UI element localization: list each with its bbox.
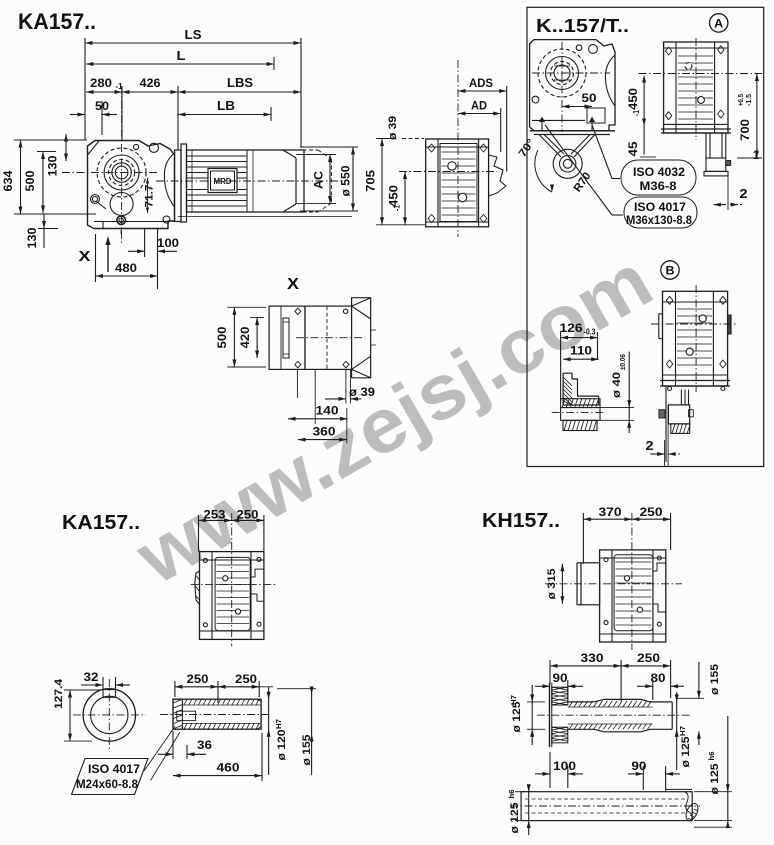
svg-text:ISO 4017: ISO 4017 <box>88 762 140 776</box>
svg-text:X: X <box>287 276 299 293</box>
svg-text:634: 634 <box>1 170 15 191</box>
svg-text:ø 39: ø 39 <box>349 385 375 399</box>
svg-text:ø 125: ø 125 <box>680 737 692 768</box>
svg-text:130: 130 <box>25 227 39 248</box>
svg-text:ISO 4017: ISO 4017 <box>634 200 686 214</box>
svg-text:250: 250 <box>640 505 663 519</box>
svg-text:250: 250 <box>237 507 259 521</box>
svg-text:LBS: LBS <box>227 75 253 90</box>
svg-text:ø 125: ø 125 <box>709 764 721 795</box>
svg-text:X: X <box>79 248 91 265</box>
svg-text:140: 140 <box>316 404 339 418</box>
svg-text:500: 500 <box>215 326 229 348</box>
svg-text:ADS: ADS <box>469 76 493 90</box>
svg-text:127.4: 127.4 <box>53 678 65 709</box>
svg-text:-0.3: -0.3 <box>584 328 596 337</box>
svg-text:ø 155: ø 155 <box>301 735 313 766</box>
svg-text:100: 100 <box>157 236 179 250</box>
svg-text:+0.5: +0.5 <box>738 94 745 106</box>
svg-text:A: A <box>714 17 723 31</box>
svg-text:1: 1 <box>753 148 759 162</box>
svg-text:130: 130 <box>46 155 60 176</box>
svg-text:110: 110 <box>570 344 592 358</box>
svg-text:MRD: MRD <box>214 177 232 186</box>
svg-text:330: 330 <box>581 651 604 665</box>
svg-text:KH157..: KH157.. <box>482 510 560 532</box>
svg-text:ø 125: ø 125 <box>511 702 523 733</box>
svg-text:KA157..: KA157.. <box>62 512 140 534</box>
svg-text:-1: -1 <box>632 110 641 116</box>
svg-text:H7: H7 <box>680 726 687 736</box>
svg-text:-1: -1 <box>393 205 402 211</box>
svg-text:AC: AC <box>312 171 326 189</box>
svg-text:ISO 4032: ISO 4032 <box>633 165 685 179</box>
svg-text:450: 450 <box>626 88 640 110</box>
svg-text:-1.5: -1.5 <box>746 94 753 106</box>
svg-text:LS: LS <box>185 27 202 42</box>
svg-text:K..157/T..: K..157/T.. <box>536 16 629 36</box>
svg-text:253: 253 <box>204 507 226 521</box>
svg-text:ø 550: ø 550 <box>339 165 353 196</box>
svg-text:M36x130-8.8: M36x130-8.8 <box>626 213 692 227</box>
svg-text:90: 90 <box>631 759 646 773</box>
svg-text:L: L <box>177 48 186 63</box>
svg-text:KA157..: KA157.. <box>18 9 96 34</box>
svg-text:250: 250 <box>187 672 209 686</box>
svg-text:460: 460 <box>217 761 240 775</box>
svg-text:AD: AD <box>471 99 487 113</box>
svg-text:±0.06: ±0.06 <box>620 354 627 370</box>
svg-text:420: 420 <box>238 326 252 348</box>
svg-text:ø 39: ø 39 <box>387 116 399 140</box>
svg-text:2: 2 <box>740 186 748 201</box>
svg-text:2: 2 <box>646 438 654 453</box>
svg-text:50: 50 <box>582 91 597 105</box>
svg-text:250: 250 <box>637 651 660 665</box>
svg-text:B: B <box>666 264 675 278</box>
svg-text:100: 100 <box>553 759 576 773</box>
svg-text:M24x60-8.8: M24x60-8.8 <box>76 777 138 791</box>
svg-text:H7: H7 <box>511 695 518 705</box>
svg-text:126: 126 <box>560 321 583 335</box>
svg-text:32: 32 <box>84 670 99 684</box>
svg-text:450: 450 <box>387 185 401 207</box>
svg-text:h6: h6 <box>709 751 716 760</box>
svg-text:426: 426 <box>140 76 161 90</box>
svg-text:705: 705 <box>364 170 378 192</box>
svg-text:M36-8: M36-8 <box>640 179 677 193</box>
svg-text:45: 45 <box>626 141 640 156</box>
svg-text:90: 90 <box>553 671 568 685</box>
svg-text:500: 500 <box>23 170 37 191</box>
svg-text:480: 480 <box>115 261 137 275</box>
svg-text:h6: h6 <box>509 789 516 798</box>
svg-text:ø 155: ø 155 <box>709 664 721 695</box>
svg-text:36: 36 <box>197 738 212 752</box>
svg-text:LB: LB <box>217 98 235 113</box>
svg-text:700: 700 <box>738 119 752 141</box>
svg-text:280: 280 <box>90 76 112 90</box>
svg-text:ø 125: ø 125 <box>509 803 521 834</box>
svg-text:360: 360 <box>313 425 336 439</box>
svg-text:370: 370 <box>599 505 622 519</box>
svg-text:ø 315: ø 315 <box>546 569 558 600</box>
svg-text:71.7: 71.7 <box>144 185 156 208</box>
svg-text:250: 250 <box>235 672 257 686</box>
svg-text:ø 40: ø 40 <box>611 372 623 398</box>
svg-text:ø 120: ø 120 <box>276 730 288 761</box>
svg-text:H7: H7 <box>276 719 283 729</box>
